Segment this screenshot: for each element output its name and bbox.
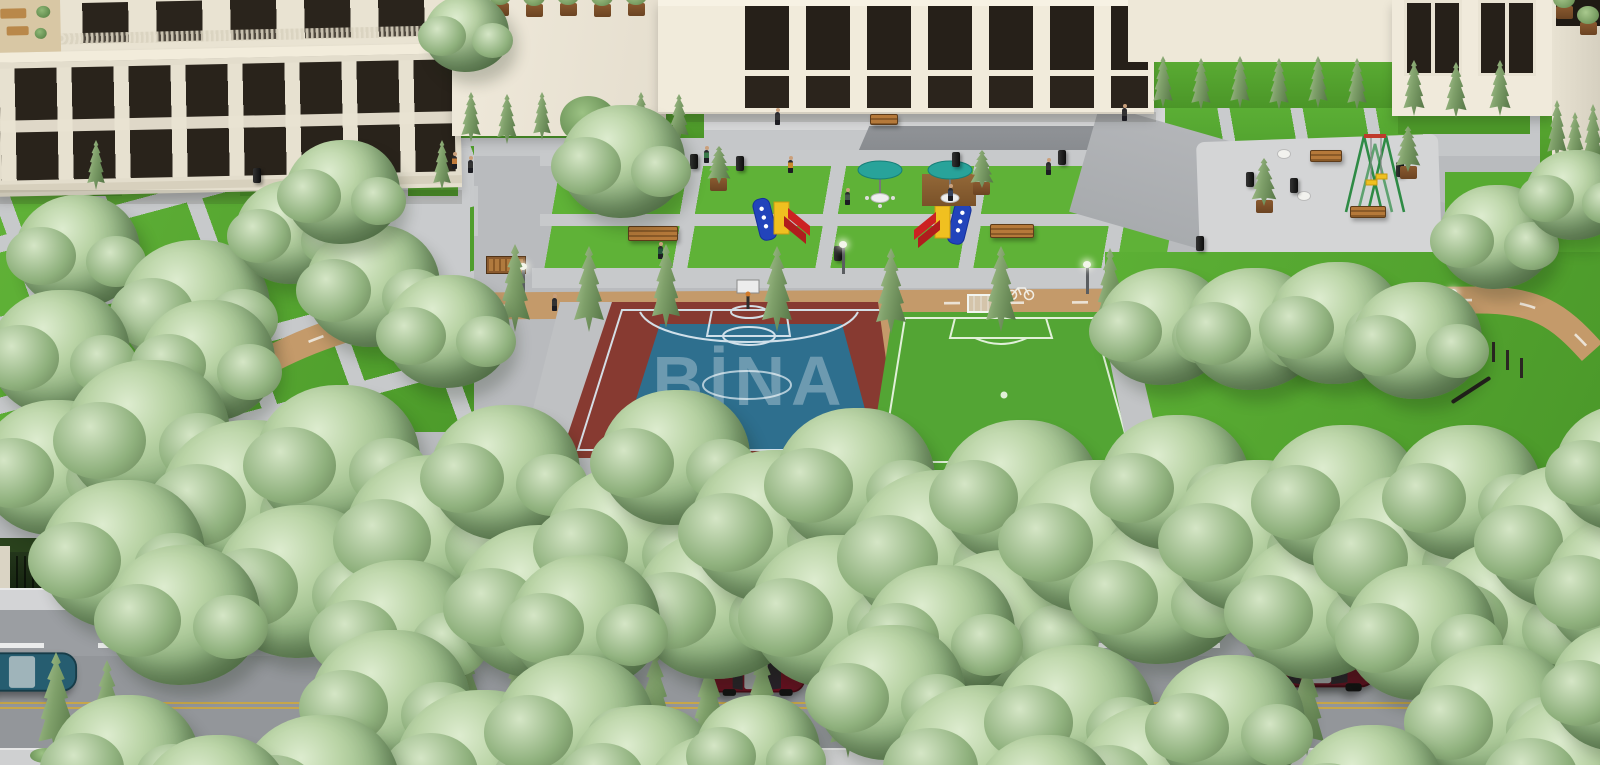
patio-umbrella: [856, 158, 904, 210]
tree: [285, 140, 400, 244]
pedestrian: [845, 192, 850, 205]
fitness-post: [1506, 350, 1509, 370]
planter: [594, 4, 611, 17]
planter-shrub: [625, 0, 647, 5]
trash-bin: [952, 152, 960, 167]
pedestrian: [468, 160, 473, 173]
trash-bin: [1246, 172, 1254, 187]
planter-shrub: [557, 0, 579, 5]
pedestrian: [1122, 108, 1127, 121]
street-lamp: [1086, 266, 1089, 294]
bench: [870, 114, 898, 125]
planter-shrub: [523, 0, 545, 6]
planter: [628, 3, 645, 16]
tree: [105, 545, 260, 685]
pedestrian: [788, 160, 793, 173]
trash-bin: [736, 156, 744, 171]
lamp-head: [1083, 261, 1091, 268]
planter-shrub: [1577, 6, 1599, 24]
trash-bin: [1196, 236, 1204, 251]
tree: [560, 105, 685, 218]
pedestrian: [704, 150, 709, 163]
tree: [1352, 282, 1482, 399]
aerial-courtyard-render: BİNA: [0, 0, 1600, 765]
pedestrian: [948, 188, 953, 201]
cafe-table: [1278, 150, 1290, 158]
fitness-post: [1520, 358, 1523, 378]
planter-shrub: [1553, 0, 1575, 8]
bench: [1310, 150, 1342, 162]
planter: [1580, 22, 1597, 35]
pedestrian: [658, 246, 663, 259]
planter: [526, 4, 543, 17]
trash-bin: [1290, 178, 1298, 193]
pedestrian: [775, 112, 780, 125]
trash-bin: [834, 246, 842, 261]
tree: [424, 0, 509, 72]
teal-sedan-partial: [0, 646, 78, 698]
planter-shrub: [591, 0, 613, 6]
lamp-head: [839, 241, 847, 248]
tree: [385, 275, 510, 388]
cafe-table: [1298, 192, 1310, 200]
basketball-rim: [746, 292, 751, 297]
pedestrian: [1046, 162, 1051, 175]
trash-bin: [1058, 150, 1066, 165]
planter: [1556, 6, 1573, 19]
pedestrian: [452, 156, 457, 169]
bench: [1350, 206, 1386, 218]
pedestrian: [552, 298, 557, 311]
planter: [560, 3, 577, 16]
basketball-backboard: [737, 280, 759, 293]
trash-bin: [690, 154, 698, 169]
fitness-post: [1492, 342, 1495, 362]
bench: [628, 226, 678, 241]
playground-slide: [752, 190, 814, 248]
trash-bin: [253, 168, 261, 183]
street-lamp: [842, 246, 845, 274]
bench: [990, 224, 1034, 238]
